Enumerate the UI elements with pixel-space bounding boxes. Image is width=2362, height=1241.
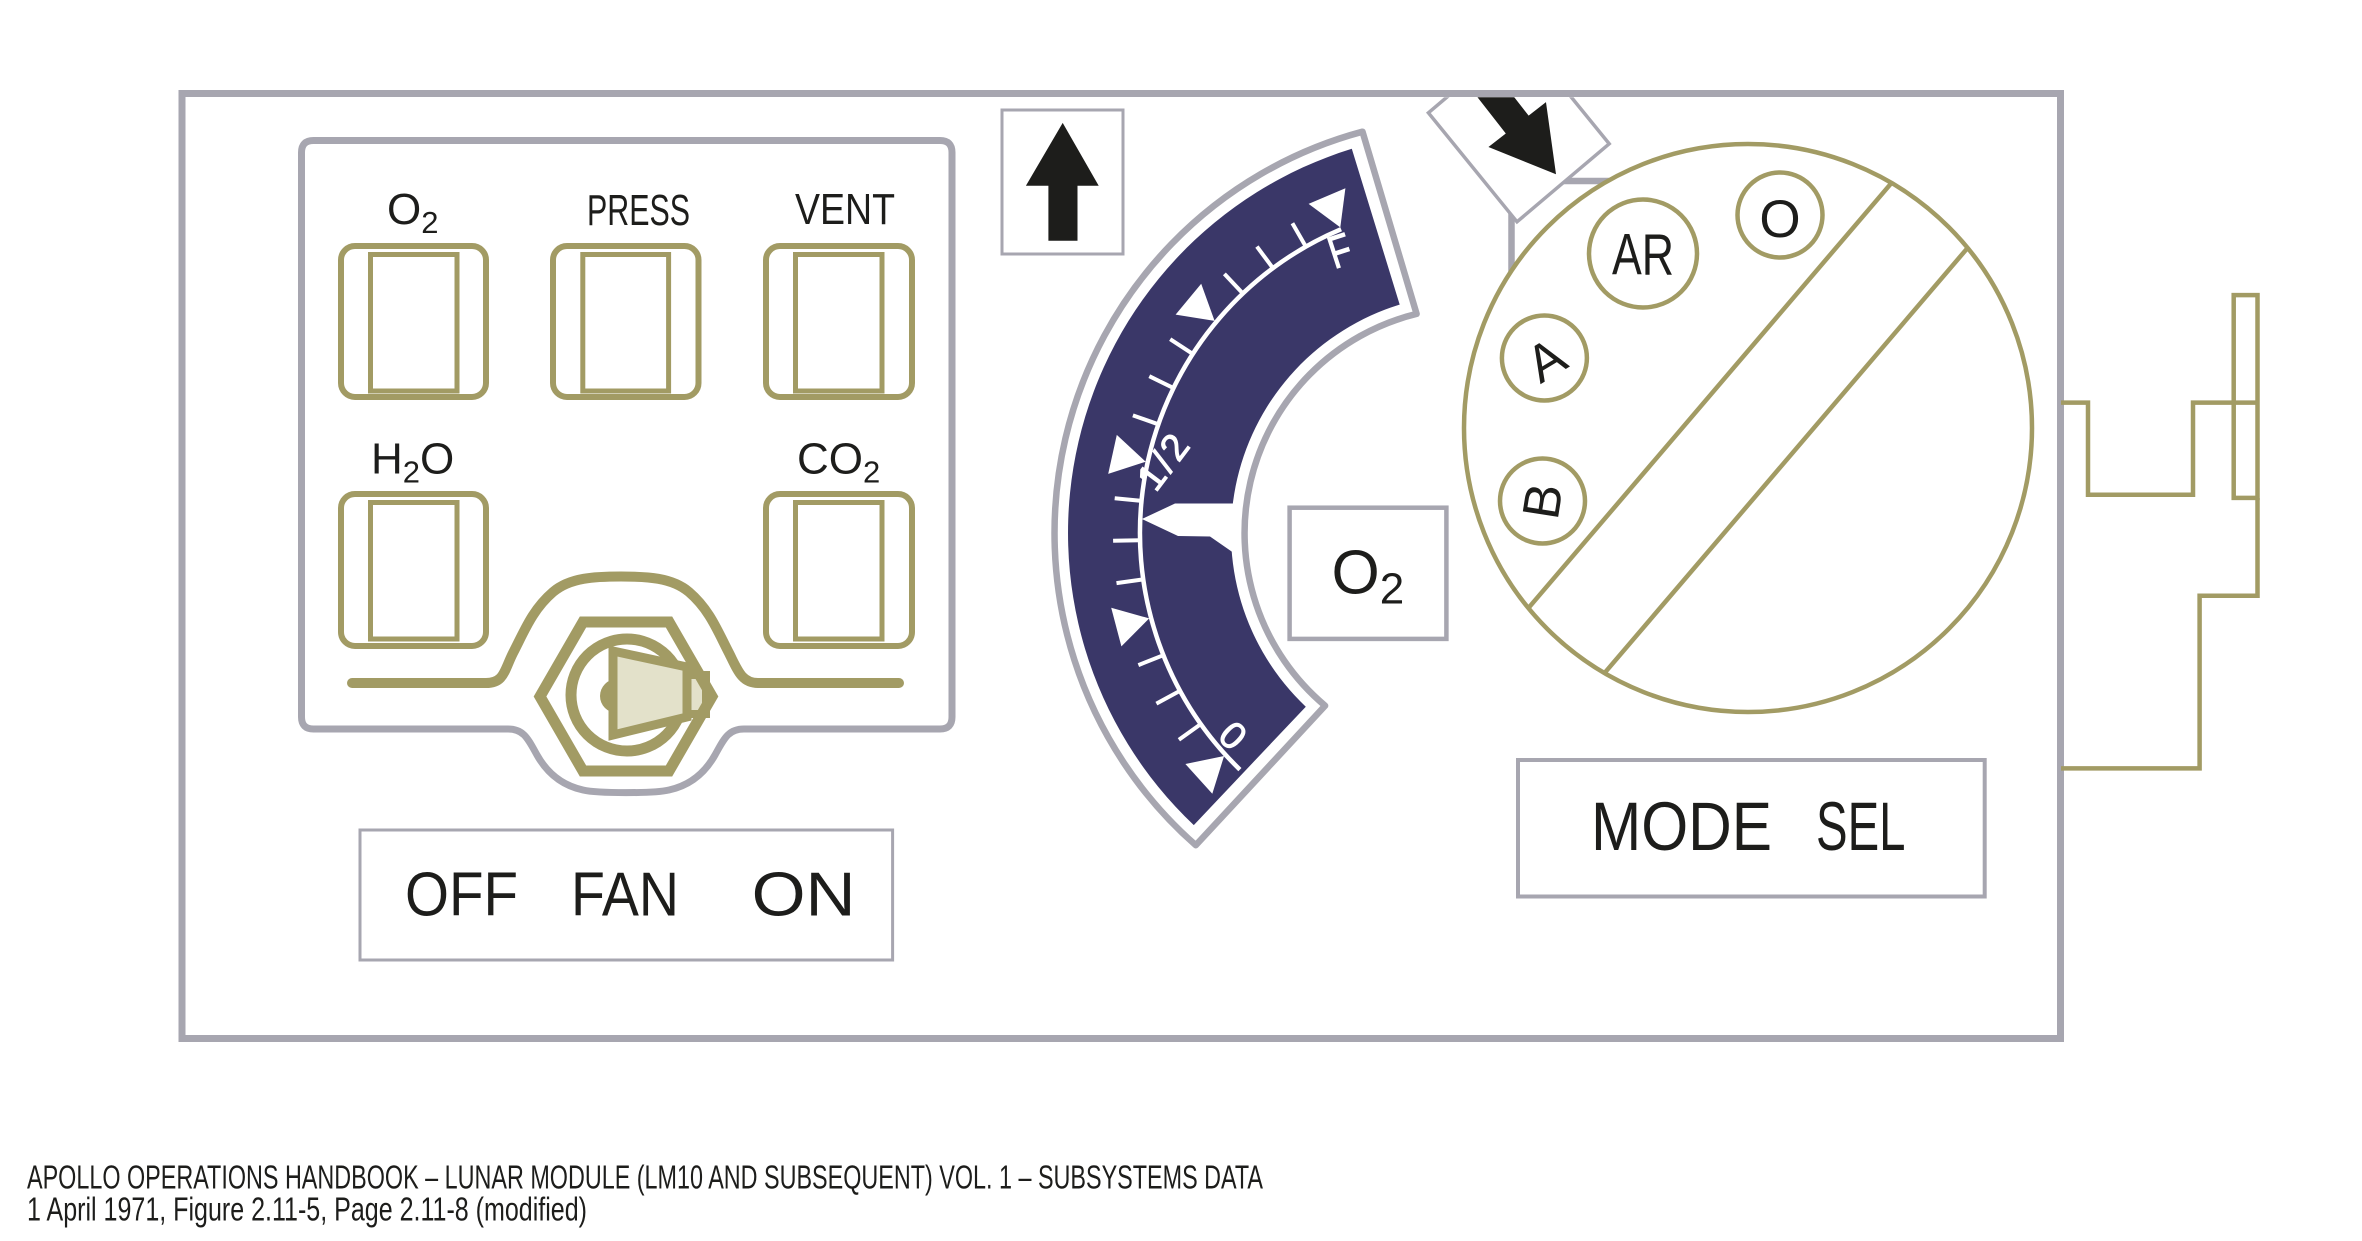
svg-text:VENT: VENT — [795, 185, 895, 234]
svg-text:PRESS: PRESS — [587, 186, 690, 235]
svg-text:MODE: MODE — [1591, 788, 1772, 865]
svg-text:AR: AR — [1612, 223, 1674, 288]
svg-text:SEL: SEL — [1816, 788, 1906, 865]
svg-text:O: O — [1759, 190, 1800, 249]
svg-text:ON: ON — [752, 861, 856, 930]
svg-text:OFF: OFF — [405, 861, 518, 930]
svg-text:1 April 1971, Figure 2.11-5, P: 1 April 1971, Figure 2.11-5, Page 2.11-8… — [27, 1191, 587, 1228]
svg-text:FAN: FAN — [571, 861, 679, 930]
